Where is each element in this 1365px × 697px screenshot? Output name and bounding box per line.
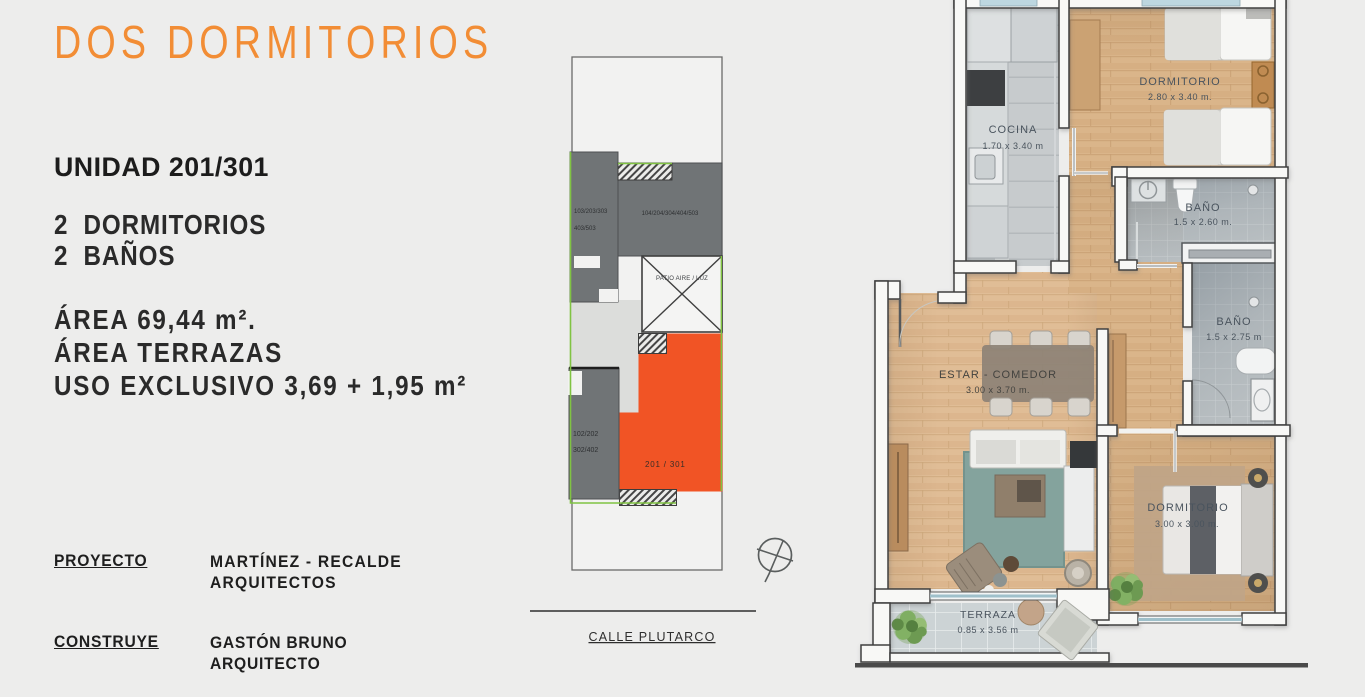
svg-text:DORMITORIO: DORMITORIO <box>1147 502 1228 514</box>
svg-text:COCINA: COCINA <box>989 124 1038 136</box>
svg-text:TERRAZA: TERRAZA <box>960 609 1016 621</box>
svg-text:1.5 x 2.60 m.: 1.5 x 2.60 m. <box>1174 217 1233 227</box>
svg-text:BAÑO: BAÑO <box>1216 315 1251 328</box>
svg-text:BAÑO: BAÑO <box>1185 201 1220 214</box>
svg-text:1.5 x 2.75 m: 1.5 x 2.75 m <box>1206 332 1262 342</box>
svg-text:1.70 x 3.40 m: 1.70 x 3.40 m <box>982 141 1043 151</box>
svg-text:0.85 x 3.56 m: 0.85 x 3.56 m <box>957 625 1018 635</box>
svg-text:2.80 x 3.40 m.: 2.80 x 3.40 m. <box>1148 92 1212 102</box>
svg-text:3.00 x 3.70 m.: 3.00 x 3.70 m. <box>966 385 1030 395</box>
svg-text:DORMITORIO: DORMITORIO <box>1139 76 1220 88</box>
svg-text:ESTAR - COMEDOR: ESTAR - COMEDOR <box>939 369 1057 381</box>
svg-text:3.00 x 3.00 m.: 3.00 x 3.00 m. <box>1155 519 1219 529</box>
